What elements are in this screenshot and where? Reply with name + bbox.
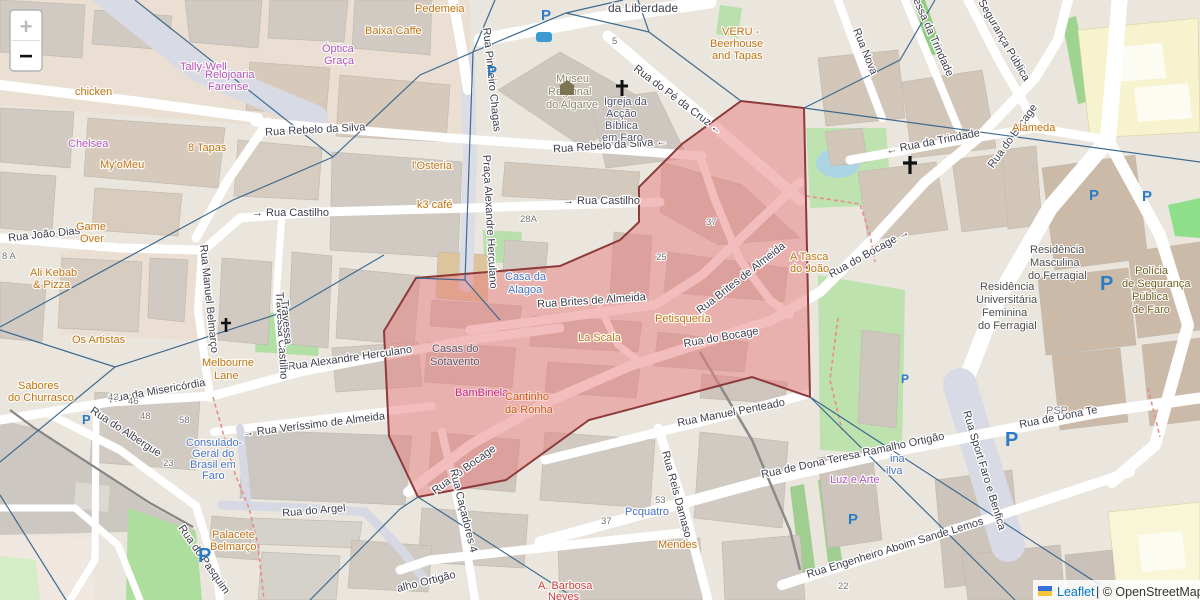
svg-text:Alagoa: Alagoa (508, 284, 543, 296)
svg-text:23: 23 (163, 458, 174, 469)
svg-text:do Ferragial: do Ferragial (978, 320, 1037, 332)
svg-text:37: 37 (706, 217, 717, 228)
svg-text:Residência: Residência (980, 281, 1035, 293)
svg-text:Farense: Farense (208, 81, 248, 93)
svg-text:Feminina: Feminina (982, 307, 1028, 319)
svg-text:Baixa Caffe: Baixa Caffe (365, 25, 422, 37)
svg-text:& Pizza: & Pizza (33, 279, 71, 291)
svg-text:k3 café: k3 café (417, 199, 452, 211)
svg-text:Casa da: Casa da (505, 271, 547, 283)
svg-text:Petisquería: Petisquería (655, 313, 712, 325)
svg-text:do João: do João (790, 263, 829, 275)
svg-text:Ali Kebab: Ali Kebab (30, 267, 77, 279)
svg-text:Leaflet: Leaflet (1057, 585, 1095, 599)
svg-text:do Algarve: do Algarve (546, 99, 598, 111)
svg-text:Graça: Graça (324, 55, 355, 67)
svg-text:28A: 28A (520, 214, 538, 225)
svg-text:chicken: chicken (75, 86, 112, 98)
svg-text:42: 42 (108, 392, 119, 403)
svg-text:da Ronha: da Ronha (505, 404, 554, 416)
svg-text:−: − (19, 43, 33, 70)
svg-text:37: 37 (601, 516, 612, 527)
svg-text:ilva: ilva (886, 465, 903, 477)
svg-text:Polícia: Polícia (1135, 265, 1169, 277)
svg-text:Museu: Museu (556, 73, 589, 85)
svg-text:5: 5 (612, 36, 617, 47)
svg-text:| © OpenStreetMap: | © OpenStreetMap (1096, 585, 1200, 599)
svg-text:Sotavento: Sotavento (430, 356, 480, 368)
svg-text:ina: ina (890, 453, 906, 465)
svg-text:8 Tapas: 8 Tapas (188, 142, 227, 154)
svg-text:Pública: Pública (1132, 291, 1169, 303)
svg-text:Over: Over (80, 233, 104, 245)
svg-text:de Faro: de Faro (1132, 304, 1170, 316)
svg-text:do Churrasco: do Churrasco (8, 392, 74, 404)
svg-text:8 A: 8 A (2, 251, 16, 262)
svg-text:→ Rua Castilho: → Rua Castilho (252, 207, 329, 219)
svg-text:48: 48 (140, 411, 151, 422)
svg-text:and Tapas: and Tapas (712, 50, 763, 62)
svg-text:P: P (541, 7, 551, 24)
svg-text:Alameda: Alameda (1012, 122, 1056, 134)
svg-text:P: P (1100, 273, 1113, 295)
svg-text:P: P (848, 511, 858, 528)
svg-text:P: P (82, 412, 91, 427)
svg-text:Lane: Lane (214, 370, 238, 382)
svg-text:Faro: Faro (202, 470, 225, 482)
svg-text:Chelsea: Chelsea (68, 138, 109, 150)
svg-text:53: 53 (655, 495, 666, 506)
svg-text:l'Osteria: l'Osteria (412, 160, 453, 172)
svg-text:P: P (1142, 188, 1152, 205)
svg-text:Beerhouse: Beerhouse (710, 38, 763, 50)
svg-text:BamBinela: BamBinela (455, 387, 509, 399)
svg-text:Mendes: Mendes (658, 539, 698, 551)
svg-text:A Tasca: A Tasca (790, 251, 829, 263)
svg-text:Igreja da: Igreja da (604, 96, 648, 108)
svg-text:P: P (198, 545, 211, 567)
svg-text:Universitária: Universitária (976, 294, 1038, 306)
svg-text:22: 22 (838, 581, 849, 592)
svg-text:Melbourne: Melbourne (202, 357, 254, 369)
svg-text:Bíblica: Bíblica (605, 120, 639, 132)
svg-text:do Ferragial: do Ferragial (1028, 270, 1087, 282)
svg-text:P: P (901, 372, 909, 386)
svg-text:PSP: PSP (1046, 405, 1068, 417)
svg-text:VERU -: VERU - (722, 26, 760, 38)
svg-text:Óptica: Óptica (322, 42, 355, 55)
svg-text:Luz e Arte: Luz e Arte (830, 474, 880, 486)
svg-text:P: P (1005, 429, 1018, 451)
svg-text:Relojoaria: Relojoaria (205, 69, 255, 81)
svg-text:Palacete: Palacete (212, 529, 255, 541)
svg-text:→ Rua Castilho: → Rua Castilho (563, 195, 640, 207)
svg-text:Sabores: Sabores (18, 380, 59, 392)
svg-text:Os Artistas: Os Artistas (72, 334, 126, 346)
svg-text:Game: Game (76, 221, 106, 233)
svg-text:25: 25 (656, 252, 667, 263)
svg-text:My'oMeu: My'oMeu (100, 159, 144, 171)
svg-text:La Scala: La Scala (578, 332, 622, 344)
svg-text:de Segurança: de Segurança (1122, 278, 1191, 290)
svg-text:Pedemeia: Pedemeia (415, 3, 465, 15)
svg-text:Residência: Residência (1030, 244, 1085, 256)
svg-text:Pcquatro: Pcquatro (625, 506, 669, 518)
svg-text:da Liberdade: da Liberdade (608, 1, 678, 15)
svg-text:Cantinho: Cantinho (505, 391, 549, 403)
svg-text:58: 58 (179, 415, 190, 426)
svg-text:Belmarço: Belmarço (210, 541, 256, 553)
svg-text:46: 46 (128, 396, 139, 407)
svg-text:Acção: Acção (606, 108, 637, 120)
svg-text:P: P (487, 63, 497, 80)
svg-text:P: P (1089, 187, 1099, 204)
svg-text:em Faro: em Faro (602, 132, 643, 144)
svg-text:+: + (20, 14, 33, 39)
svg-text:Casas do: Casas do (432, 343, 478, 355)
svg-text:Neves: Neves (548, 591, 580, 600)
svg-text:Masculina: Masculina (1030, 257, 1080, 269)
